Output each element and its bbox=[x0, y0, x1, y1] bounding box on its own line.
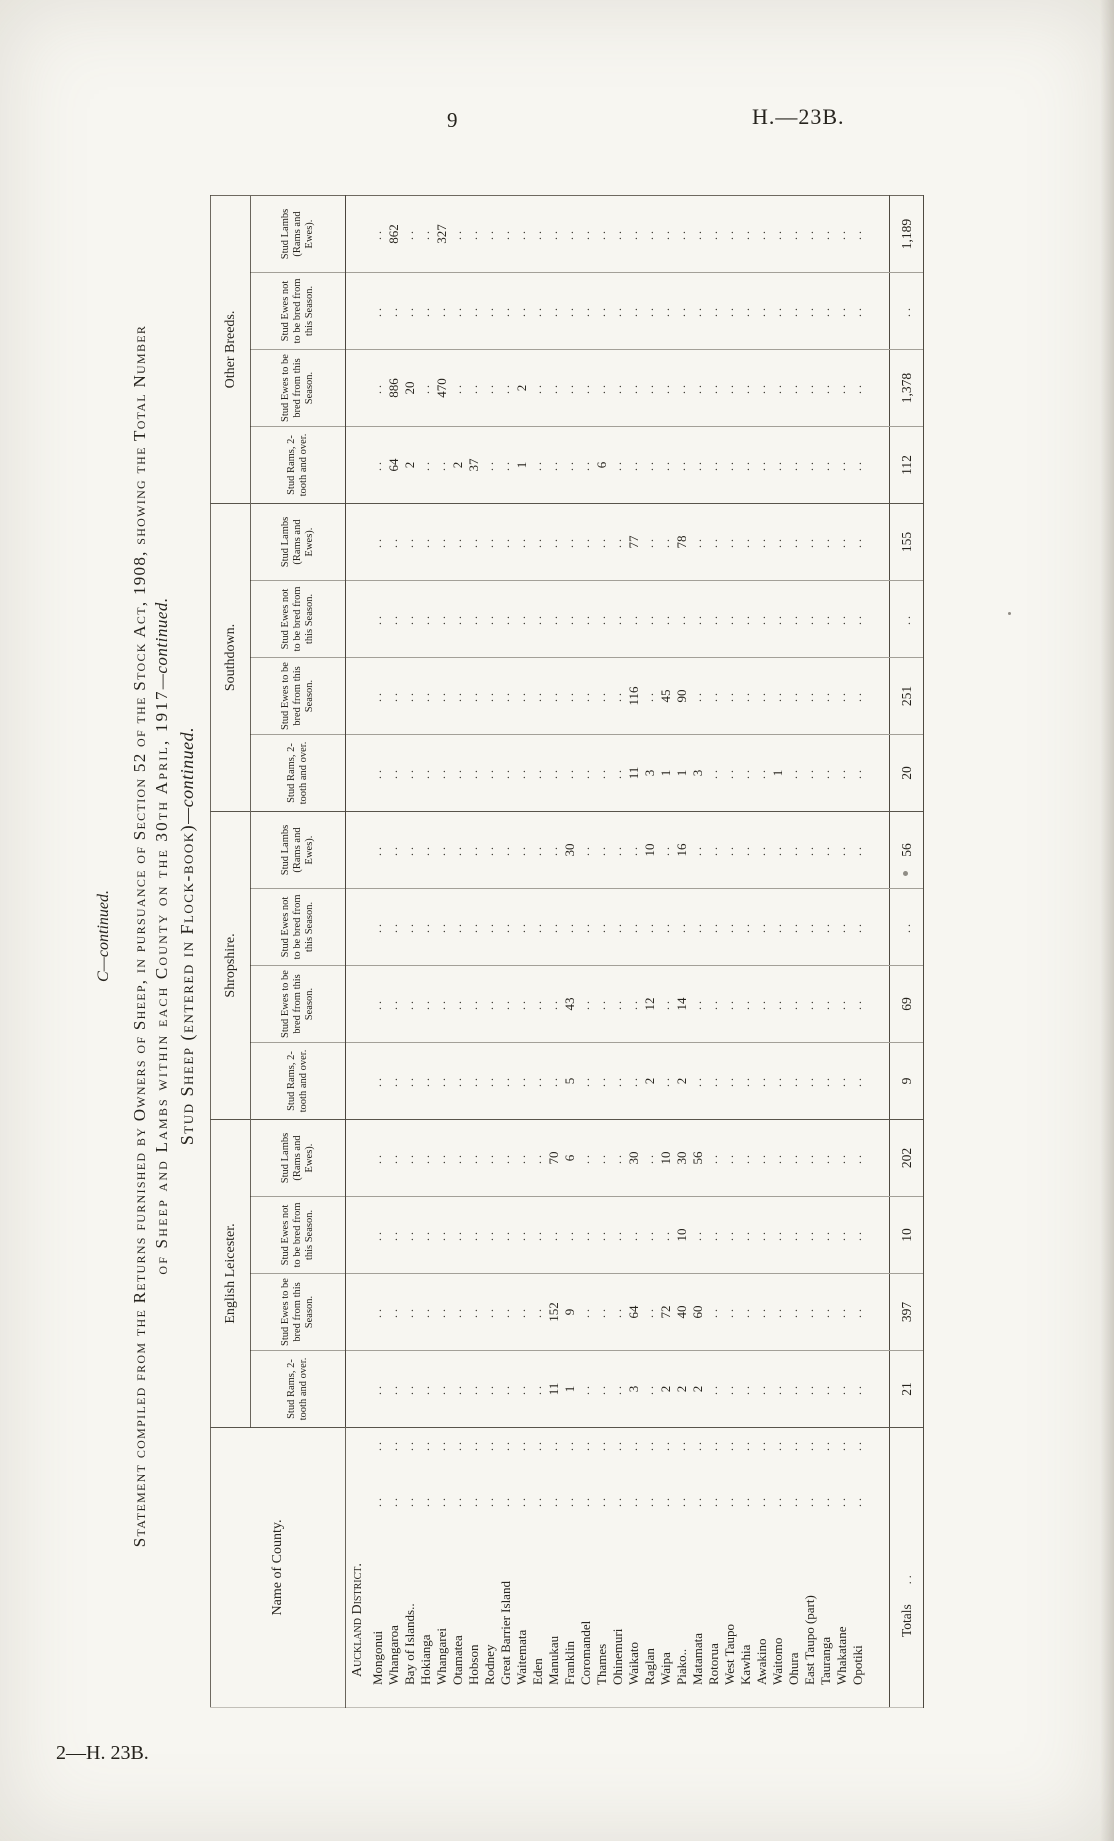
county-name: Ohinemuri bbox=[610, 1629, 625, 1685]
data-cell: .. bbox=[802, 1197, 818, 1274]
data-cell: 16 bbox=[674, 812, 690, 889]
data-cell: 1 bbox=[674, 735, 690, 812]
county-name: Whakatane bbox=[834, 1627, 849, 1685]
data-cell: .. bbox=[722, 889, 738, 966]
table-row: Manukau....11152..70....................… bbox=[546, 196, 562, 1708]
data-cell: .. bbox=[562, 735, 578, 812]
data-cell: .. bbox=[722, 1120, 738, 1197]
data-cell: .. bbox=[722, 1197, 738, 1274]
data-cell: .. bbox=[370, 812, 386, 889]
rotated-table-block: C—continued. Statement compiled from the… bbox=[95, 150, 1010, 1710]
data-cell: .. bbox=[610, 658, 626, 735]
data-cell: .. bbox=[786, 1197, 802, 1274]
data-cell: .. bbox=[466, 966, 482, 1043]
data-cell: .. bbox=[482, 196, 498, 273]
data-cell: 1,189 bbox=[890, 196, 924, 273]
leader-dots: .. bbox=[786, 1495, 799, 1507]
data-cell: .. bbox=[802, 504, 818, 581]
data-cell: .. bbox=[578, 735, 594, 812]
data-cell: .. bbox=[482, 1274, 498, 1351]
sub-column-header: Stud Ewes to be bred from this Season. bbox=[251, 966, 346, 1043]
data-cell: .. bbox=[818, 658, 834, 735]
leader-dots: .. bbox=[754, 1495, 767, 1507]
data-cell: 397 bbox=[890, 1274, 924, 1351]
data-cell: .. bbox=[530, 812, 546, 889]
data-cell: .. bbox=[546, 1197, 562, 1274]
data-cell: .. bbox=[370, 1043, 386, 1120]
data-cell: .. bbox=[642, 581, 658, 658]
page-number: 9 bbox=[447, 108, 458, 133]
data-cell bbox=[866, 350, 890, 427]
data-cell: .. bbox=[562, 427, 578, 504]
data-cell: 56 bbox=[690, 1120, 706, 1197]
section-continued-label: C—continued. bbox=[95, 156, 113, 1716]
data-cell: .. bbox=[418, 1197, 434, 1274]
data-cell: .. bbox=[498, 581, 514, 658]
data-cell: .. bbox=[370, 889, 386, 966]
data-cell: .. bbox=[386, 1043, 402, 1120]
county-name: Rotorua bbox=[706, 1643, 721, 1685]
data-cell: .. bbox=[818, 966, 834, 1043]
data-cell: .. bbox=[594, 1120, 610, 1197]
name-of-county-header: Name of County. bbox=[211, 1428, 346, 1708]
data-cell: .. bbox=[706, 350, 722, 427]
data-cell: .. bbox=[370, 273, 386, 350]
data-cell: .. bbox=[434, 658, 450, 735]
data-cell: .. bbox=[850, 1197, 866, 1274]
table-row: Whangarei..............................4… bbox=[434, 196, 450, 1708]
data-cell: .. bbox=[386, 504, 402, 581]
data-cell: 2 bbox=[674, 1351, 690, 1428]
data-cell: .. bbox=[818, 273, 834, 350]
data-cell: .. bbox=[642, 1197, 658, 1274]
data-cell: .. bbox=[370, 1197, 386, 1274]
data-cell: 12 bbox=[642, 966, 658, 1043]
data-cell: .. bbox=[546, 196, 562, 273]
data-cell: .. bbox=[578, 504, 594, 581]
data-cell: 45 bbox=[658, 658, 674, 735]
county-name: Manukau bbox=[546, 1636, 561, 1685]
data-cell: .. bbox=[402, 966, 418, 1043]
data-cell: .. bbox=[850, 1274, 866, 1351]
data-cell: .. bbox=[530, 196, 546, 273]
data-cell: .. bbox=[418, 273, 434, 350]
data-cell: .. bbox=[482, 889, 498, 966]
data-cell: .. bbox=[770, 581, 786, 658]
data-cell: .. bbox=[434, 273, 450, 350]
stud-sheep-table: Name of County.English Leicester.Shropsh… bbox=[210, 195, 924, 1708]
leader-dots: .. bbox=[658, 1495, 671, 1507]
data-cell: .. bbox=[738, 966, 754, 1043]
data-cell: .. bbox=[770, 504, 786, 581]
data-cell: .. bbox=[370, 658, 386, 735]
data-cell bbox=[866, 1197, 890, 1274]
data-cell: .. bbox=[530, 427, 546, 504]
data-cell: .. bbox=[594, 812, 610, 889]
data-cell: 21 bbox=[890, 1351, 924, 1428]
data-cell: .. bbox=[562, 196, 578, 273]
data-cell: .. bbox=[594, 966, 610, 1043]
data-cell: .. bbox=[706, 273, 722, 350]
data-cell: .. bbox=[418, 581, 434, 658]
data-cell: .. bbox=[706, 504, 722, 581]
data-cell: .. bbox=[530, 658, 546, 735]
data-cell: .. bbox=[562, 889, 578, 966]
data-cell: .. bbox=[706, 966, 722, 1043]
county-name: Tauranga bbox=[818, 1637, 833, 1685]
data-cell: .. bbox=[722, 273, 738, 350]
data-cell: .. bbox=[498, 1274, 514, 1351]
data-cell: .. bbox=[754, 1043, 770, 1120]
data-cell: .. bbox=[786, 350, 802, 427]
data-cell: .. bbox=[578, 812, 594, 889]
leader-dots: .. bbox=[834, 1495, 847, 1507]
county-name: Eden bbox=[530, 1658, 545, 1685]
data-cell bbox=[346, 273, 370, 350]
paper-reference: H.—23B. bbox=[752, 104, 845, 130]
data-cell: 10 bbox=[890, 1197, 924, 1274]
data-cell: .. bbox=[610, 427, 626, 504]
data-cell: 3 bbox=[626, 1351, 642, 1428]
data-cell: 1 bbox=[658, 735, 674, 812]
data-cell: .. bbox=[674, 427, 690, 504]
county-name: Kawhia bbox=[738, 1645, 753, 1685]
data-cell: .. bbox=[370, 735, 386, 812]
data-cell: .. bbox=[434, 1351, 450, 1428]
data-cell: .. bbox=[450, 196, 466, 273]
data-cell: .. bbox=[450, 273, 466, 350]
scanned-document-page: 9 H.—23B. 2—H. 23B. C—continued. Stateme… bbox=[0, 0, 1114, 1841]
data-cell bbox=[346, 658, 370, 735]
data-cell: .. bbox=[434, 581, 450, 658]
data-cell: .. bbox=[754, 504, 770, 581]
data-cell: .. bbox=[834, 658, 850, 735]
data-cell: .. bbox=[546, 427, 562, 504]
sub-column-header: Stud Ewes not to be bred from this Seaso… bbox=[251, 889, 346, 966]
data-cell: .. bbox=[818, 350, 834, 427]
data-cell: .. bbox=[562, 1197, 578, 1274]
data-cell: 60 bbox=[690, 1274, 706, 1351]
table-row: Coromandel..............................… bbox=[578, 196, 594, 1708]
data-cell: .. bbox=[610, 1120, 626, 1197]
data-cell: .. bbox=[530, 966, 546, 1043]
data-cell bbox=[346, 812, 370, 889]
county-name: Waitemata bbox=[514, 1630, 529, 1685]
data-cell bbox=[346, 504, 370, 581]
data-cell: .. bbox=[530, 273, 546, 350]
table-row: Rotorua.................................… bbox=[706, 196, 722, 1708]
leader-dots: .. bbox=[900, 1572, 914, 1584]
table-row: Rodney..................................… bbox=[482, 196, 498, 1708]
data-cell: 2 bbox=[642, 1043, 658, 1120]
data-cell: .. bbox=[642, 889, 658, 966]
data-cell: .. bbox=[466, 889, 482, 966]
data-cell: .. bbox=[802, 966, 818, 1043]
data-cell: .. bbox=[690, 196, 706, 273]
county-name: Piako.. bbox=[674, 1649, 689, 1685]
data-cell: .. bbox=[802, 735, 818, 812]
county-name: Coromandel bbox=[578, 1621, 593, 1685]
county-name: Hobson bbox=[466, 1645, 481, 1685]
data-cell: .. bbox=[594, 1197, 610, 1274]
data-cell: .. bbox=[754, 658, 770, 735]
data-cell: .. bbox=[482, 504, 498, 581]
data-cell: .. bbox=[690, 350, 706, 427]
data-cell: .. bbox=[386, 1351, 402, 1428]
leader-dots: .. bbox=[690, 1439, 703, 1451]
data-cell: .. bbox=[770, 1274, 786, 1351]
data-cell: .. bbox=[722, 196, 738, 273]
data-cell: .. bbox=[514, 196, 530, 273]
data-cell: .. bbox=[818, 1351, 834, 1428]
data-cell: 2 bbox=[674, 1043, 690, 1120]
data-cell: .. bbox=[658, 1043, 674, 1120]
data-cell: .. bbox=[498, 196, 514, 273]
data-cell: .. bbox=[834, 1120, 850, 1197]
table-row: Kawhia..................................… bbox=[738, 196, 754, 1708]
data-cell: .. bbox=[722, 966, 738, 1043]
data-cell: .. bbox=[402, 1043, 418, 1120]
table-row: Otamatea............................2...… bbox=[450, 196, 466, 1708]
sub-column-header: Stud Lambs (Rams and Ewes). bbox=[251, 196, 346, 273]
leader-dots: .. bbox=[450, 1439, 463, 1451]
data-cell: .. bbox=[642, 1120, 658, 1197]
data-cell: .. bbox=[594, 504, 610, 581]
data-cell: .. bbox=[530, 889, 546, 966]
county-name: Franklin bbox=[562, 1641, 577, 1685]
data-cell: .. bbox=[402, 581, 418, 658]
data-cell: .. bbox=[722, 350, 738, 427]
data-cell: .. bbox=[834, 812, 850, 889]
data-cell bbox=[346, 966, 370, 1043]
data-cell bbox=[866, 581, 890, 658]
leader-dots: .. bbox=[530, 1495, 543, 1507]
leader-dots: .. bbox=[434, 1439, 447, 1451]
data-cell: .. bbox=[626, 966, 642, 1043]
data-cell: .. bbox=[786, 966, 802, 1043]
county-name: Waikato bbox=[626, 1642, 641, 1685]
data-cell: .. bbox=[802, 581, 818, 658]
data-cell: .. bbox=[434, 427, 450, 504]
data-cell bbox=[866, 1043, 890, 1120]
data-cell: .. bbox=[578, 1120, 594, 1197]
data-cell: .. bbox=[434, 504, 450, 581]
data-cell: .. bbox=[514, 1197, 530, 1274]
data-cell bbox=[346, 350, 370, 427]
leader-dots: .. bbox=[546, 1495, 559, 1507]
data-cell: .. bbox=[594, 735, 610, 812]
data-cell: .. bbox=[594, 1274, 610, 1351]
data-cell: 152 bbox=[546, 1274, 562, 1351]
data-cell: .. bbox=[738, 1043, 754, 1120]
sub-column-header: Stud Lambs (Rams and Ewes). bbox=[251, 1120, 346, 1197]
data-cell: .. bbox=[754, 966, 770, 1043]
table-row: Matamata....260..56........3............… bbox=[690, 196, 706, 1708]
data-cell: .. bbox=[466, 273, 482, 350]
data-cell bbox=[866, 1274, 890, 1351]
data-cell: .. bbox=[498, 1197, 514, 1274]
data-cell: .. bbox=[850, 1351, 866, 1428]
sub-column-header: Stud Rams, 2-tooth and over. bbox=[251, 427, 346, 504]
county-name: Waitomo bbox=[770, 1638, 785, 1685]
data-cell: .. bbox=[418, 812, 434, 889]
data-cell: .. bbox=[482, 350, 498, 427]
table-row: Whakatane...............................… bbox=[834, 196, 850, 1708]
data-cell: .. bbox=[738, 889, 754, 966]
leader-dots: .. bbox=[626, 1439, 639, 1451]
data-cell: .. bbox=[802, 196, 818, 273]
data-cell: .. bbox=[690, 812, 706, 889]
data-cell: .. bbox=[610, 889, 626, 966]
data-cell: .. bbox=[674, 350, 690, 427]
data-cell: .. bbox=[722, 427, 738, 504]
data-cell: .. bbox=[834, 966, 850, 1043]
data-cell: .. bbox=[466, 581, 482, 658]
data-cell: 251 bbox=[890, 658, 924, 735]
data-cell bbox=[866, 427, 890, 504]
data-cell: .. bbox=[850, 1120, 866, 1197]
data-cell: .. bbox=[850, 273, 866, 350]
data-cell: .. bbox=[418, 196, 434, 273]
data-cell: .. bbox=[706, 427, 722, 504]
data-cell: .. bbox=[578, 350, 594, 427]
table-row: Ohinemuri...............................… bbox=[610, 196, 626, 1708]
data-cell: .. bbox=[834, 196, 850, 273]
data-cell: .. bbox=[722, 581, 738, 658]
data-cell: .. bbox=[482, 966, 498, 1043]
data-cell: .. bbox=[578, 1197, 594, 1274]
data-cell: .. bbox=[834, 735, 850, 812]
leader-dots: .. bbox=[706, 1439, 719, 1451]
data-cell: .. bbox=[610, 581, 626, 658]
totals-row: Totals..2139710202969..5620251..1551121,… bbox=[890, 196, 924, 1708]
data-cell: 6 bbox=[562, 1120, 578, 1197]
data-cell: .. bbox=[434, 1043, 450, 1120]
leader-dots: .. bbox=[642, 1439, 655, 1451]
leader-dots: .. bbox=[594, 1495, 607, 1507]
data-cell: .. bbox=[482, 273, 498, 350]
data-cell: .. bbox=[722, 658, 738, 735]
data-cell: .. bbox=[594, 889, 610, 966]
page-edge-shadow bbox=[1100, 0, 1114, 1841]
data-cell: .. bbox=[434, 812, 450, 889]
data-cell: .. bbox=[738, 1197, 754, 1274]
leader-dots: .. bbox=[386, 1495, 399, 1507]
data-cell bbox=[866, 889, 890, 966]
data-cell: .. bbox=[370, 504, 386, 581]
sub-column-header: Stud Ewes to be bred from this Season. bbox=[251, 658, 346, 735]
county-name: Whangaroa bbox=[386, 1625, 401, 1685]
data-cell: 5 bbox=[562, 1043, 578, 1120]
data-cell: .. bbox=[626, 1197, 642, 1274]
data-cell: .. bbox=[754, 581, 770, 658]
leader-dots: .. bbox=[594, 1439, 607, 1451]
data-cell: .. bbox=[706, 581, 722, 658]
data-cell: .. bbox=[642, 1351, 658, 1428]
data-cell: .. bbox=[498, 1120, 514, 1197]
data-cell: .. bbox=[658, 812, 674, 889]
county-name: Hokianga bbox=[418, 1634, 433, 1685]
data-cell: .. bbox=[370, 196, 386, 273]
data-cell: .. bbox=[482, 427, 498, 504]
data-cell: .. bbox=[626, 427, 642, 504]
data-cell: .. bbox=[850, 350, 866, 427]
county-name: Waipa bbox=[658, 1652, 673, 1685]
data-cell: .. bbox=[818, 196, 834, 273]
data-cell: .. bbox=[546, 350, 562, 427]
data-cell: .. bbox=[466, 735, 482, 812]
data-cell: 116 bbox=[626, 658, 642, 735]
data-cell: .. bbox=[594, 581, 610, 658]
data-cell: .. bbox=[610, 735, 626, 812]
data-cell: .. bbox=[466, 1274, 482, 1351]
data-cell: .. bbox=[450, 735, 466, 812]
data-cell: .. bbox=[482, 1351, 498, 1428]
data-cell bbox=[346, 1043, 370, 1120]
data-cell: .. bbox=[610, 1351, 626, 1428]
data-cell: .. bbox=[450, 1120, 466, 1197]
data-cell: 9 bbox=[890, 1043, 924, 1120]
data-cell: 202 bbox=[890, 1120, 924, 1197]
data-cell: 10 bbox=[642, 812, 658, 889]
leader-dots: .. bbox=[482, 1495, 495, 1507]
data-cell: .. bbox=[834, 1351, 850, 1428]
data-cell: .. bbox=[722, 735, 738, 812]
leader-dots: .. bbox=[706, 1495, 719, 1507]
data-cell: 30 bbox=[562, 812, 578, 889]
statement-title-line2: of Sheep and Lambs within each County on… bbox=[151, 156, 173, 1716]
data-cell: .. bbox=[722, 504, 738, 581]
data-cell: .. bbox=[626, 196, 642, 273]
data-cell: .. bbox=[498, 1043, 514, 1120]
data-cell: .. bbox=[594, 1351, 610, 1428]
data-cell: .. bbox=[834, 1274, 850, 1351]
data-cell: .. bbox=[754, 273, 770, 350]
data-cell: .. bbox=[850, 889, 866, 966]
data-cell: .. bbox=[690, 273, 706, 350]
leader-dots: .. bbox=[578, 1439, 591, 1451]
data-cell: .. bbox=[530, 1120, 546, 1197]
data-cell: .. bbox=[786, 273, 802, 350]
data-cell bbox=[866, 1120, 890, 1197]
data-cell: .. bbox=[690, 658, 706, 735]
data-cell: .. bbox=[498, 889, 514, 966]
data-cell: .. bbox=[722, 1351, 738, 1428]
data-cell: .. bbox=[530, 1197, 546, 1274]
data-cell: 14 bbox=[674, 966, 690, 1043]
data-cell: .. bbox=[466, 1043, 482, 1120]
data-cell: .. bbox=[418, 427, 434, 504]
data-cell: .. bbox=[850, 812, 866, 889]
data-cell bbox=[866, 273, 890, 350]
leader-dots: .. bbox=[402, 1495, 415, 1507]
data-cell: .. bbox=[610, 196, 626, 273]
data-cell: .. bbox=[690, 966, 706, 1043]
leader-dots: .. bbox=[786, 1439, 799, 1451]
data-cell: .. bbox=[674, 581, 690, 658]
data-cell: .. bbox=[786, 504, 802, 581]
data-cell: .. bbox=[818, 504, 834, 581]
footer-reference: 2—H. 23B. bbox=[56, 1742, 149, 1765]
data-cell: .. bbox=[578, 1043, 594, 1120]
data-cell: .. bbox=[626, 581, 642, 658]
data-cell: .. bbox=[890, 889, 924, 966]
data-cell: .. bbox=[770, 196, 786, 273]
data-cell: .. bbox=[754, 196, 770, 273]
data-cell: .. bbox=[498, 658, 514, 735]
data-cell: .. bbox=[482, 812, 498, 889]
data-cell: .. bbox=[802, 427, 818, 504]
